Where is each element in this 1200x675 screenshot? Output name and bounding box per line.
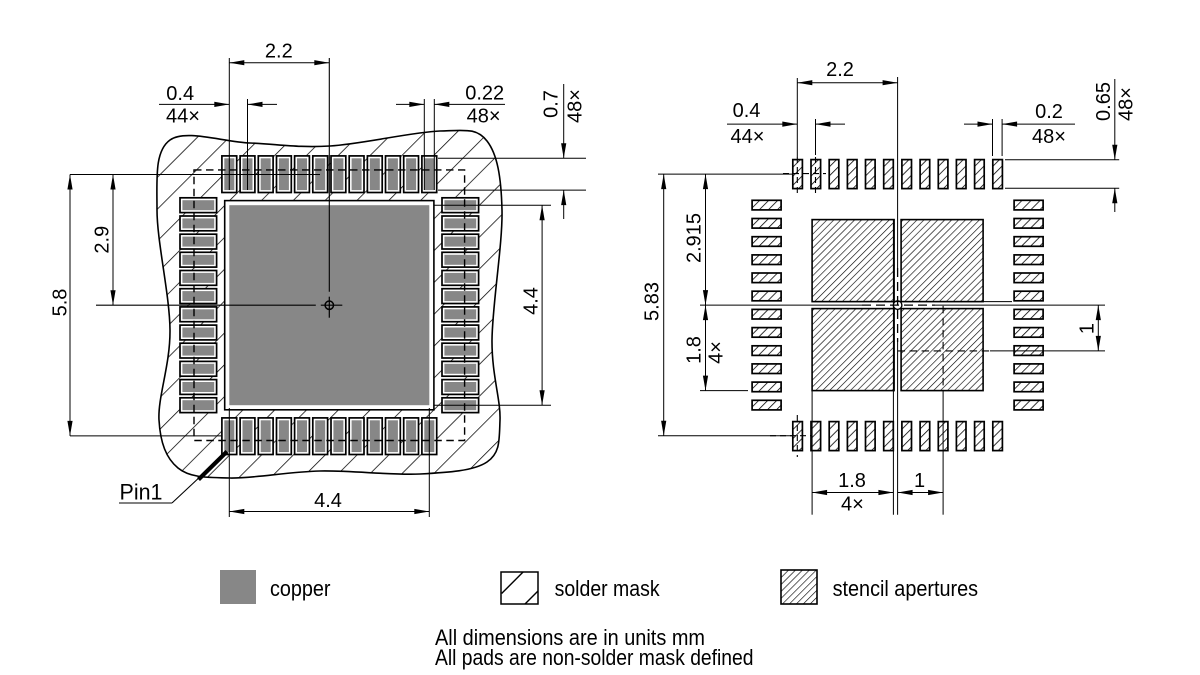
svg-text:44×: 44×: [731, 126, 765, 148]
svg-text:1.8: 1.8: [838, 470, 866, 492]
svg-text:0.65: 0.65: [1093, 82, 1115, 121]
svg-text:stencil apertures: stencil apertures: [833, 576, 979, 601]
svg-text:48×: 48×: [1116, 87, 1138, 121]
svg-text:4.4: 4.4: [314, 490, 342, 512]
svg-text:0.4: 0.4: [733, 100, 761, 122]
svg-text:1: 1: [1077, 323, 1099, 334]
svg-text:5.83: 5.83: [642, 282, 664, 321]
svg-text:2.915: 2.915: [684, 213, 706, 263]
svg-text:4×: 4×: [706, 341, 728, 364]
svg-text:4.4: 4.4: [521, 287, 543, 315]
svg-text:0.4: 0.4: [166, 83, 194, 105]
svg-text:2.2: 2.2: [826, 59, 854, 81]
svg-text:4×: 4×: [841, 494, 864, 516]
svg-text:44×: 44×: [166, 106, 200, 128]
svg-text:0.7: 0.7: [541, 90, 563, 118]
svg-text:All pads are non-solder mask d: All pads are non-solder mask defined: [435, 645, 754, 670]
svg-text:solder mask: solder mask: [555, 576, 661, 601]
svg-text:48×: 48×: [1032, 126, 1066, 148]
svg-text:2.9: 2.9: [91, 226, 113, 254]
svg-text:1: 1: [914, 470, 925, 492]
svg-text:2.2: 2.2: [265, 41, 293, 63]
svg-text:Pin1: Pin1: [120, 480, 163, 505]
svg-text:5.8: 5.8: [50, 289, 72, 317]
svg-text:0.22: 0.22: [465, 83, 504, 105]
svg-text:48×: 48×: [467, 106, 501, 128]
svg-text:48×: 48×: [565, 89, 587, 123]
svg-text:0.2: 0.2: [1035, 101, 1063, 123]
svg-text:copper: copper: [270, 576, 331, 601]
svg-text:1.8: 1.8: [684, 336, 706, 364]
